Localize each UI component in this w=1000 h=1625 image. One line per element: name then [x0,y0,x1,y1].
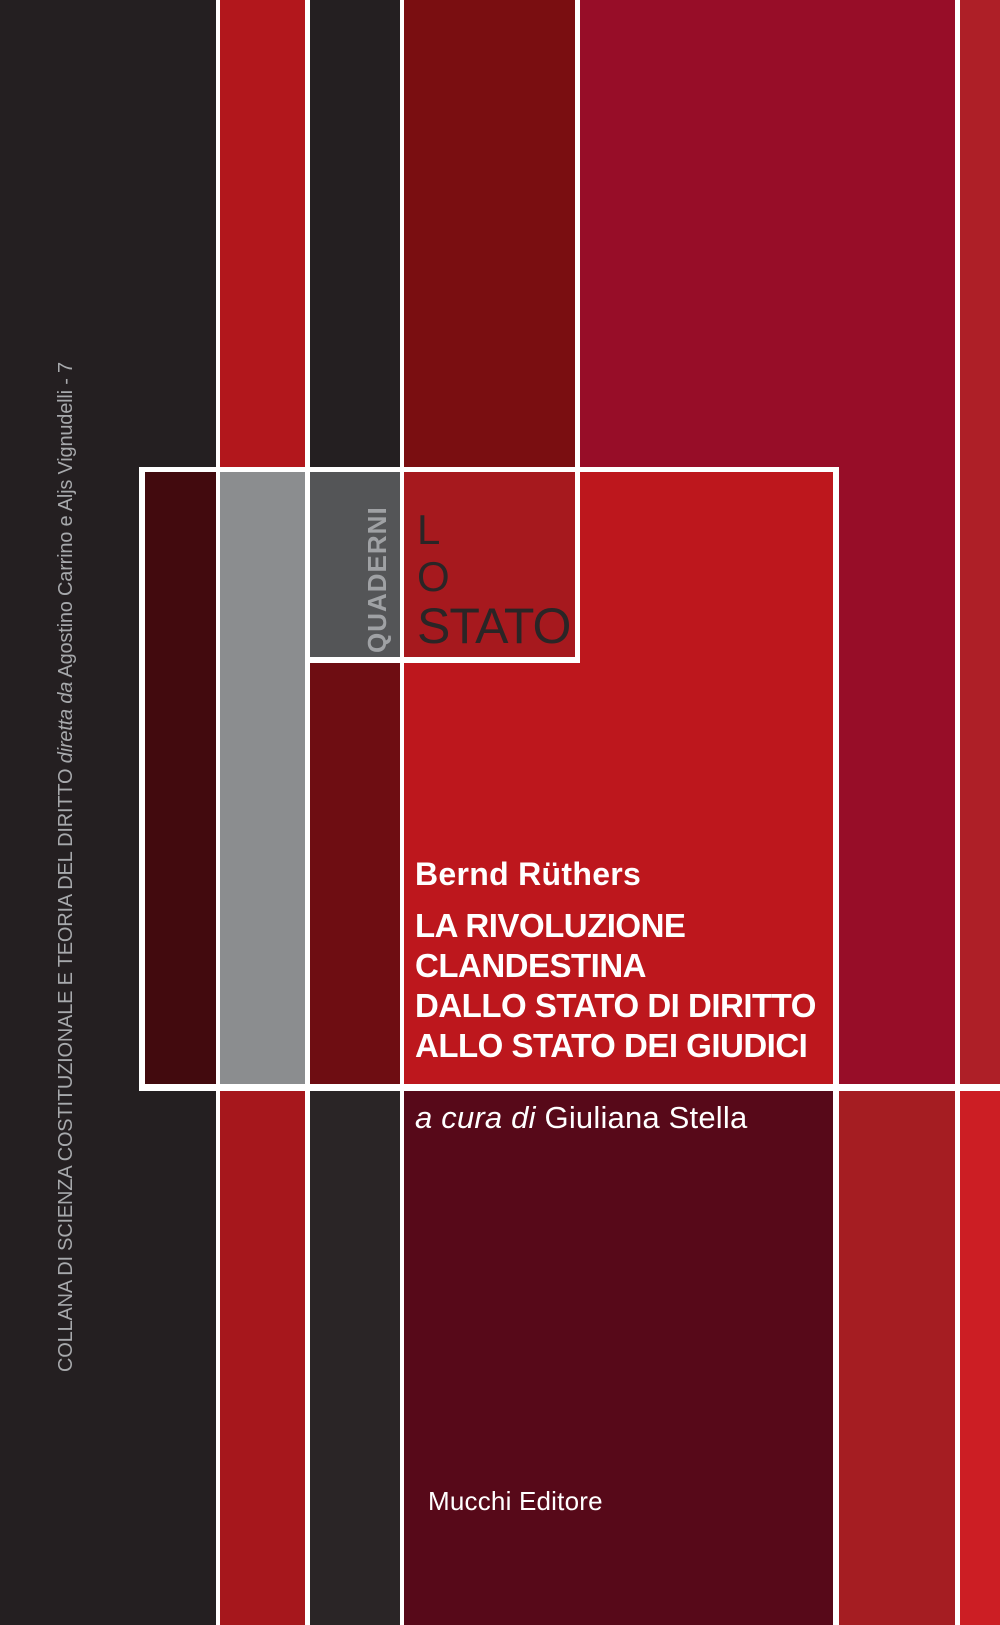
logo-line-2: O [417,553,570,600]
editor-line: a cura di Giuliana Stella [415,1100,747,1136]
maroon-column [145,472,216,1084]
publisher-name: Mucchi Editore [428,1486,603,1517]
stripe-red-edge-bottom [960,1091,1000,1625]
series-directed-by: diretta da [55,682,77,763]
stripe-red-top [220,0,305,467]
book-title: LA RIVOLUZIONE CLANDESTINA DALLO STATO D… [415,906,816,1066]
stripe-red-right-bottom [839,1091,955,1625]
editor-prefix: a cura di [415,1100,536,1135]
stripe-dark-left-bottom [0,1091,216,1625]
logo-line-1: L [417,506,570,553]
book-cover: COLLANA DI SCIENZA COSTITUZIONALE E TEOR… [0,0,1000,1625]
title-line-3: DALLO STATO DI DIRITTO [415,986,816,1026]
stripe-red-bottom-left [220,1091,305,1625]
quaderni-label: QUADERNI [362,469,392,653]
stripe-crimson-top [580,0,955,467]
title-line-2: CLANDESTINA [415,946,816,986]
gray-column [220,472,305,1084]
logo-line-3: STATO [417,600,570,652]
series-title: COLLANA DI SCIENZA COSTITUZIONALE E TEOR… [55,769,77,1372]
editor-name: Giuliana Stella [545,1100,748,1135]
editor-publisher-panel [404,1091,833,1625]
stripe-dark-middle-top [310,0,400,467]
stripe-dark-top-left [0,0,216,467]
lo-stato-logo: L O STATO [417,506,570,652]
title-line-4: ALLO STATO DEI GIUDICI [415,1026,816,1066]
stripe-darkred-top [404,0,575,467]
series-editors: Agostino Carrino e Aljs Vignudelli - 7 [55,362,77,678]
stripe-red-edge-top [960,0,1000,1084]
darkred-middle-column [310,663,400,1084]
series-spine-text: COLLANA DI SCIENZA COSTITUZIONALE E TEOR… [55,412,81,1372]
stripe-dark-middle-bottom [310,1091,400,1625]
stripe-crimson-right [839,467,955,1084]
author-name: Bernd Rüthers [415,856,641,893]
title-line-1: LA RIVOLUZIONE [415,906,816,946]
